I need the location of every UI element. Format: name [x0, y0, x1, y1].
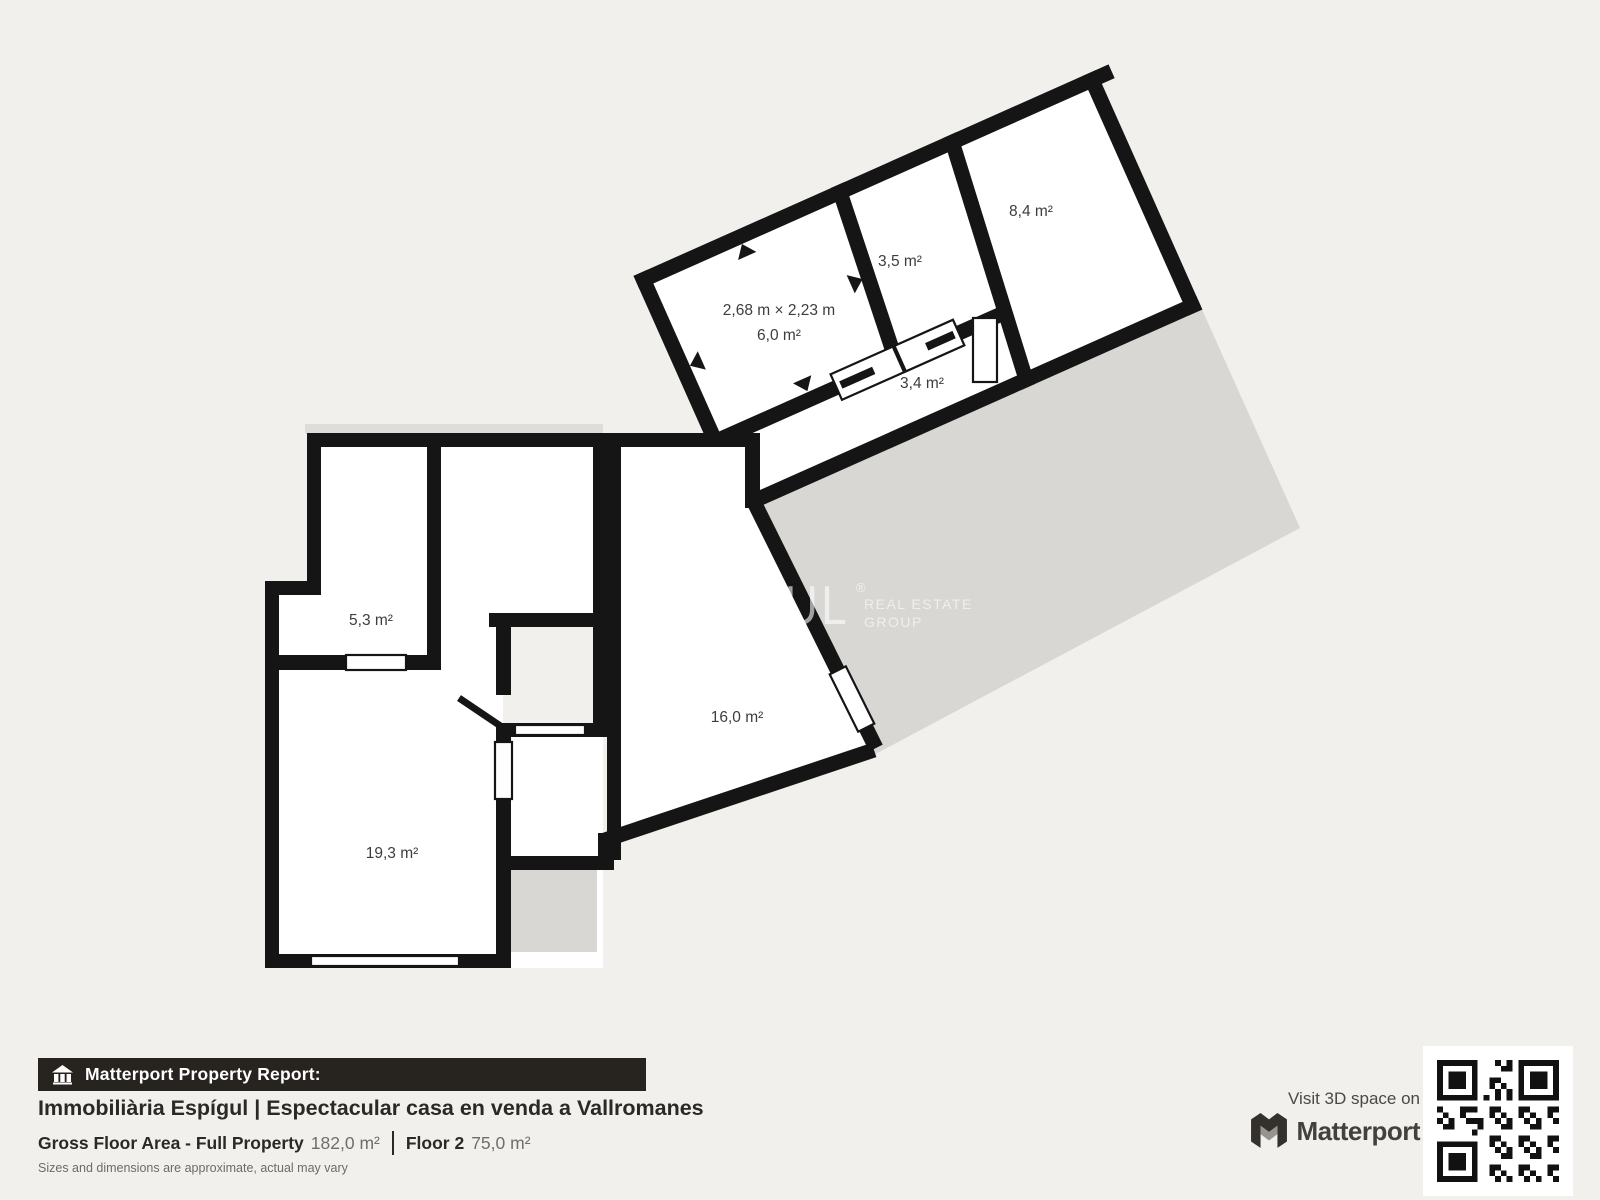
floor-label: Floor 2	[406, 1133, 464, 1154]
disclaimer-text: Sizes and dimensions are approximate, ac…	[38, 1161, 348, 1175]
matterport-m-icon	[1251, 1112, 1287, 1150]
qr-code-pattern	[1437, 1060, 1559, 1182]
corridor-door	[973, 318, 997, 382]
watermark-brand: ESPÍGUL	[628, 574, 850, 636]
watermark-sub2: GROUP	[864, 614, 923, 630]
room-label-3-4: 3,4 m²	[900, 375, 944, 392]
divider	[392, 1131, 394, 1155]
report-bar: Matterport Property Report:	[38, 1058, 646, 1091]
watermark-reg: ®	[856, 580, 866, 595]
floor-value: 75,0 m²	[471, 1133, 530, 1154]
area-summary: Gross Floor Area - Full Property 182,0 m…	[38, 1131, 531, 1155]
matterport-logo: Matterport	[1251, 1112, 1420, 1150]
visit-3d-text: Visit 3D space on	[1288, 1089, 1420, 1109]
room-dims-6-0: 2,68 m × 2,23 m	[723, 302, 835, 319]
floor-plan: 8,4 m² 3,5 m² 2,68 m × 2,23 m 6,0 m² 3,4…	[0, 0, 1600, 1200]
qr-code	[1423, 1046, 1573, 1196]
matterport-wordmark: Matterport	[1296, 1116, 1420, 1147]
room-label-6-0: 6,0 m²	[757, 327, 801, 344]
matterport-floorplan-report: { "plan": { "rooms": { "r84": {"label": …	[0, 0, 1600, 1200]
page-title: Immobiliària Espígul | Espectacular casa…	[38, 1096, 938, 1121]
patio-area	[510, 870, 597, 952]
report-bar-label: Matterport Property Report:	[85, 1064, 321, 1085]
lightwell-void	[503, 627, 600, 723]
room-label-8-4: 8,4 m²	[1009, 203, 1053, 220]
gross-area-label: Gross Floor Area - Full Property	[38, 1133, 304, 1154]
room-label-5-3: 5,3 m²	[349, 612, 393, 629]
gross-area-value: 182,0 m²	[311, 1133, 380, 1154]
room-label-16-0: 16,0 m²	[711, 709, 764, 726]
room-label-19-3: 19,3 m²	[366, 845, 419, 862]
house-icon	[52, 1065, 73, 1085]
watermark-sub1: REAL ESTATE	[864, 596, 973, 612]
floor-shadow-strip	[305, 424, 603, 434]
room-label-3-5: 3,5 m²	[878, 253, 922, 270]
